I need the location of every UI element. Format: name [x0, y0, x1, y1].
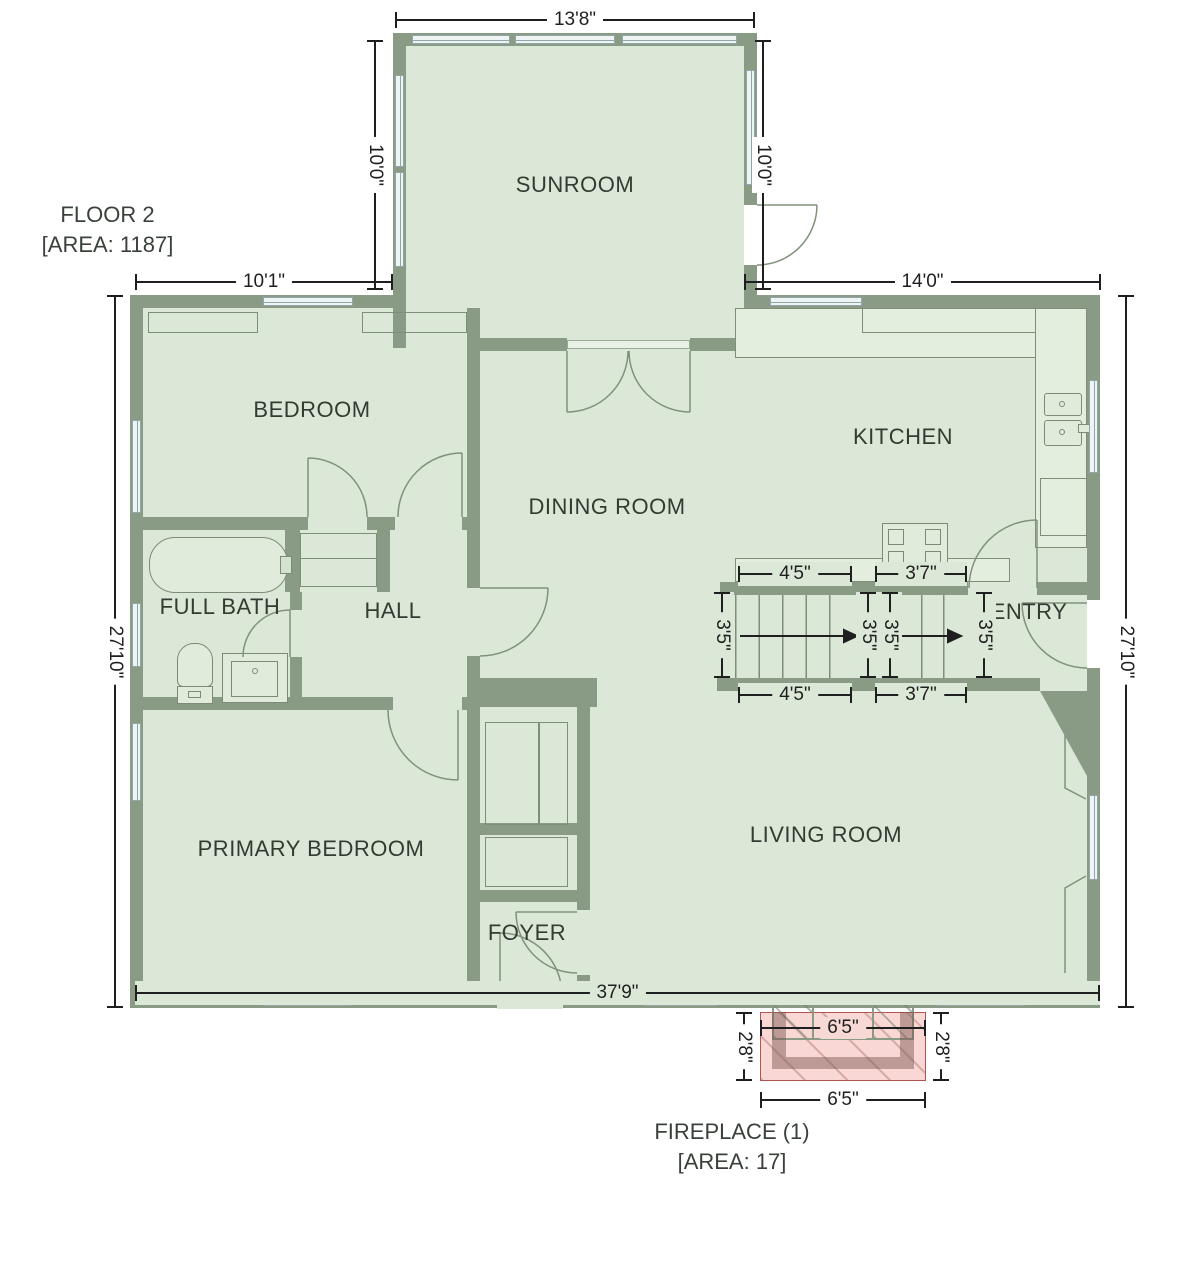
dim-label: 27'10" [1115, 618, 1137, 685]
dim-label: 3'5" [879, 612, 901, 658]
bathtub [149, 537, 288, 593]
sink-drain [1059, 401, 1065, 407]
window-mullion [413, 40, 509, 41]
wall-segment [467, 707, 480, 995]
wall-segment [290, 592, 302, 610]
dim-label: 3'5" [973, 612, 995, 658]
dim-tick [135, 985, 137, 1001]
dim-label: 27'10" [104, 618, 126, 685]
dim-house-height-right: 27'10" [1114, 295, 1138, 1008]
floor-title-line2: [AREA: 1187] [25, 230, 190, 260]
window [1089, 380, 1098, 473]
closet-divider-line [538, 722, 540, 825]
window-mullion [1094, 381, 1095, 472]
window-mullion [264, 302, 352, 303]
dim-tick [744, 274, 746, 290]
dim-label: 10'1" [236, 271, 292, 293]
dim-label: 3'7" [898, 684, 944, 706]
wall-segment [480, 338, 567, 351]
dim-stair-width-4: 3'5" [972, 592, 996, 678]
stairs-run-1 [735, 595, 852, 678]
dim-bedroom-width: 10'1" [135, 270, 393, 294]
dim-label: 6'5" [820, 1017, 866, 1039]
dim-label: 13'8" [547, 9, 603, 31]
stove-burner [925, 529, 941, 545]
dim-label: 4'5" [772, 684, 818, 706]
primary-closet [485, 837, 568, 887]
dim-tick [760, 1092, 762, 1108]
dim-stair-run2-bottom: 3'7" [875, 683, 967, 707]
dim-stair-width-1: 3'5" [710, 592, 734, 678]
stove-burner [888, 529, 904, 545]
wall-segment [480, 890, 590, 902]
wall-segment [467, 678, 597, 707]
dim-sunroom-height-right: 10'0" [751, 40, 775, 290]
floor-title: FLOOR 2 [AREA: 1187] [25, 200, 190, 259]
window [412, 35, 510, 44]
dim-fireplace-depth-left: 2'8" [732, 1012, 756, 1081]
dim-label: 2'8" [930, 1024, 952, 1070]
dim-tick [976, 592, 992, 594]
wall-segment [143, 517, 308, 530]
room-label-primary-bedroom: PRIMARY BEDROOM [198, 836, 425, 862]
room-label-sunroom: SUNROOM [516, 172, 634, 198]
linen-closet [300, 533, 377, 587]
dim-label: 10'0" [752, 137, 774, 193]
dim-tick [1098, 985, 1100, 1001]
dim-sunroom-height-left: 10'0" [363, 40, 387, 290]
toilet-flush-button [188, 691, 201, 698]
dim-label: 3'5" [857, 612, 879, 658]
dim-label: 3'5" [711, 612, 733, 658]
room-label-living-room: LIVING ROOM [750, 822, 902, 848]
dishwasher [1040, 478, 1087, 536]
wall-segment [462, 517, 480, 530]
room-label-full-bath: FULL BATH [160, 594, 281, 620]
window-mullion [623, 40, 736, 41]
dim-tick [736, 1012, 752, 1014]
dim-tick [760, 1020, 762, 1036]
toilet-bowl [177, 643, 213, 687]
dim-fireplace-depth-right: 2'8" [929, 1012, 953, 1081]
dim-label: 3'7" [898, 563, 944, 585]
dim-house-height-left: 27'10" [103, 295, 127, 1008]
window [770, 297, 862, 306]
primary-closet [485, 722, 568, 825]
dim-stair-run1-bottom: 4'5" [738, 683, 852, 707]
room-label-bedroom: BEDROOM [253, 397, 370, 423]
dim-tick [107, 295, 123, 297]
wall-segment [1037, 582, 1087, 595]
window-mullion [516, 40, 614, 41]
wall-segment [467, 656, 480, 678]
bath-sink-drain [252, 668, 258, 674]
window [132, 723, 141, 801]
dim-tick [755, 40, 771, 42]
window-mullion [137, 421, 138, 512]
bath-sink [231, 661, 278, 697]
dim-tick [753, 12, 755, 28]
dim-tick [395, 12, 397, 28]
closet-shelf-line [300, 558, 377, 559]
dim-tick [738, 687, 740, 703]
dim-tick [860, 676, 876, 678]
dim-label: 6'5" [820, 1089, 866, 1111]
french-door-sill [567, 340, 690, 349]
window-mullion [400, 76, 401, 166]
dim-tick [860, 592, 876, 594]
dim-tick [924, 1092, 926, 1108]
room-label-dining-room: DINING ROOM [528, 494, 685, 520]
room-label-hall: HALL [364, 598, 421, 624]
dim-house-width: 37'9" [135, 981, 1100, 1005]
window [395, 172, 404, 267]
dim-sunroom-width: 13'8" [395, 8, 755, 32]
dim-label: 14'0" [894, 271, 950, 293]
dim-label: 10'0" [364, 137, 386, 193]
dim-tick [976, 676, 992, 678]
window [132, 420, 141, 513]
dim-tick [965, 687, 967, 703]
dim-label: 2'8" [733, 1024, 755, 1070]
window-mullion [137, 724, 138, 800]
floor-plan: SUNROOM BEDROOM KITCHEN DINING ROOM FULL… [0, 0, 1201, 1280]
bedroom-closet [148, 312, 258, 333]
fireplace-title-line1: FIREPLACE (1) [612, 1117, 852, 1147]
window [515, 35, 615, 44]
dim-tick [736, 1079, 752, 1081]
dim-tick [933, 1012, 949, 1014]
dim-tick [882, 676, 898, 678]
dim-tick [1118, 1006, 1134, 1008]
dim-label: 37'9" [589, 982, 645, 1004]
wall-segment [467, 308, 480, 530]
dim-fireplace-width-inner: 6'5" [760, 1016, 926, 1040]
dim-tick [367, 40, 383, 42]
dim-tick [924, 1020, 926, 1036]
wall-segment [467, 530, 480, 588]
dim-tick [107, 1006, 123, 1008]
dim-tick [850, 687, 852, 703]
dim-stair-run2-top: 3'7" [875, 562, 967, 586]
dim-tick [875, 687, 877, 703]
room-label-entry: ENTRY [991, 599, 1068, 625]
dim-tick [875, 566, 877, 582]
dim-tick [714, 676, 730, 678]
dim-label: 4'5" [772, 563, 818, 585]
window [395, 75, 404, 167]
dim-tick [882, 592, 898, 594]
fireplace-title-line2: [AREA: 17] [612, 1147, 852, 1177]
dim-tick [135, 274, 137, 290]
window-mullion [771, 302, 861, 303]
dim-tick [391, 274, 393, 290]
dim-tick [1118, 295, 1134, 297]
wall-segment [577, 707, 590, 910]
window-mullion [1094, 796, 1095, 879]
dim-tick [714, 592, 730, 594]
bathtub-faucet [280, 556, 292, 574]
dim-tick [933, 1079, 949, 1081]
window [132, 603, 141, 667]
dim-tick [1099, 274, 1101, 290]
wall-segment [377, 530, 390, 592]
sink-drain [1059, 429, 1065, 435]
dim-stair-run1-top: 4'5" [738, 562, 852, 586]
window [622, 35, 737, 44]
window [1089, 795, 1098, 880]
room-label-foyer: FOYER [488, 920, 566, 946]
wall-segment [290, 657, 302, 697]
floor-title-line1: FLOOR 2 [25, 200, 190, 230]
dim-stair-width-2: 3'5" [856, 592, 880, 678]
dim-tick [738, 566, 740, 582]
window-mullion [400, 173, 401, 266]
dim-tick [850, 566, 852, 582]
dim-fireplace-width-outer: 6'5" [760, 1088, 926, 1112]
dim-kitchen-width: 14'0" [744, 270, 1101, 294]
room-label-kitchen: KITCHEN [853, 424, 953, 450]
wall-segment [367, 517, 395, 530]
window-mullion [137, 604, 138, 666]
window [263, 297, 353, 306]
fireplace-title: FIREPLACE (1) [AREA: 17] [612, 1117, 852, 1176]
bedroom-closet [362, 312, 467, 333]
dim-stair-width-3: 3'5" [878, 592, 902, 678]
dim-tick [965, 566, 967, 582]
